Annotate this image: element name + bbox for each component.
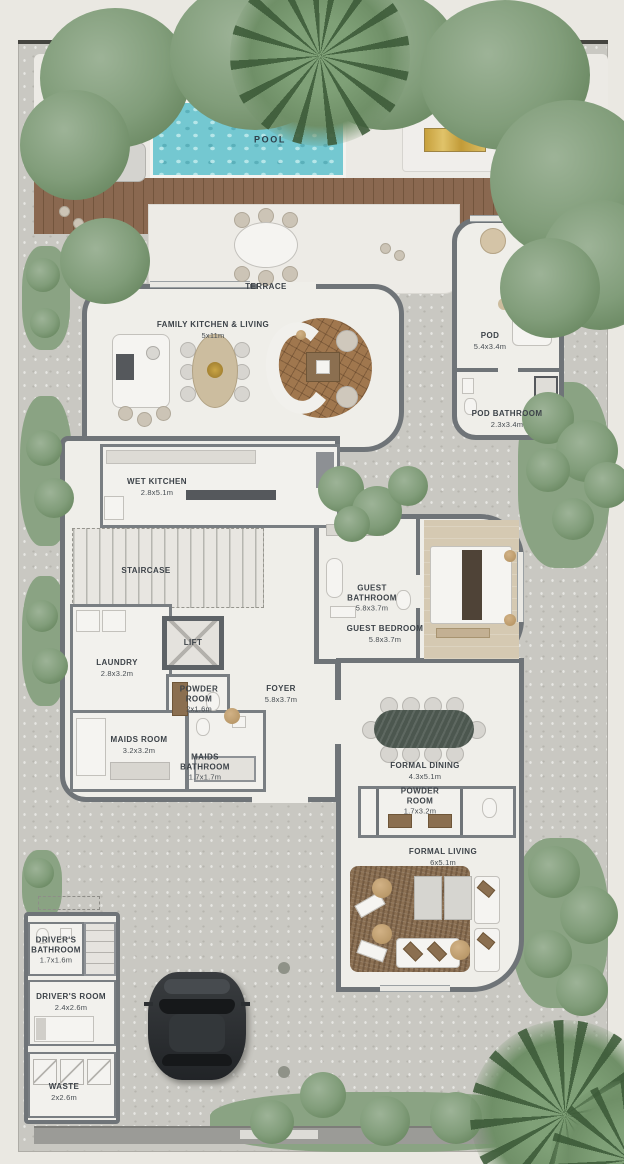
table-centerpiece bbox=[207, 362, 223, 378]
lounge-pouf bbox=[336, 386, 358, 408]
terrace-stool bbox=[282, 266, 298, 282]
dining-chair bbox=[234, 386, 250, 402]
formal-dining-table bbox=[374, 710, 474, 748]
powder2-partition bbox=[460, 789, 463, 835]
room-label-waste: WASTE2x2.6m bbox=[34, 1082, 94, 1102]
room-label-lift: LIFT bbox=[168, 638, 218, 648]
bedside-lamp bbox=[504, 614, 516, 626]
room-label-powder-room-2: POWDER ROOM1.7x3.2m bbox=[394, 786, 446, 815]
car-mirror bbox=[144, 1002, 153, 1006]
car-rear-window bbox=[162, 1054, 232, 1066]
room-label-foyer: FOYER5.8x3.7m bbox=[236, 684, 326, 704]
room-label-guest-bathroom: GUEST BATHROOM5.8x3.7m bbox=[343, 583, 401, 612]
bush bbox=[30, 308, 60, 338]
bush bbox=[32, 648, 68, 684]
stepping-stone bbox=[278, 1066, 290, 1078]
annex-porch bbox=[38, 896, 100, 910]
powder2-partition bbox=[376, 789, 379, 835]
car-mirror bbox=[241, 1002, 250, 1006]
terrace-stool bbox=[234, 266, 250, 282]
bush bbox=[300, 1072, 346, 1118]
living-pouf bbox=[372, 924, 392, 944]
living-pouf bbox=[372, 878, 392, 898]
bush bbox=[26, 430, 62, 466]
room-label-formal-dining: FORMAL DINING4.3x5.1m bbox=[370, 761, 480, 781]
guest-bathtub bbox=[326, 558, 343, 598]
terrace-pot-2 bbox=[394, 250, 405, 261]
terrace-table bbox=[234, 222, 298, 268]
room-label-maids-room: MAIDS ROOM3.2x3.2m bbox=[94, 735, 184, 755]
bush bbox=[26, 600, 58, 632]
dining-chair bbox=[180, 386, 196, 402]
tree bbox=[60, 218, 150, 304]
room-label-pod-bathroom: POD BATHROOM2.3x3.4m bbox=[447, 409, 567, 429]
foyer-dining-opening bbox=[334, 700, 341, 744]
deck-pot-1 bbox=[59, 206, 70, 217]
maids-toilet bbox=[196, 718, 210, 736]
waste-bin bbox=[87, 1059, 111, 1085]
floor-plan: POOL TERRACE FAMILY KITCHEN & LIVING5x11… bbox=[0, 0, 624, 1164]
room-label-pod: POD5.4x3.4m bbox=[450, 331, 530, 351]
bush bbox=[250, 1100, 294, 1144]
bush bbox=[34, 478, 74, 518]
window-guest-right bbox=[517, 552, 524, 622]
waste-bin bbox=[33, 1059, 57, 1085]
coffee-table-tray bbox=[316, 360, 330, 374]
bush bbox=[360, 1096, 410, 1146]
lounge-pouf bbox=[336, 330, 358, 352]
car bbox=[148, 972, 246, 1080]
room-label-wet-kitchen: WET KITCHEN2.8x5.1m bbox=[102, 477, 212, 497]
bush bbox=[26, 258, 60, 292]
bush bbox=[24, 858, 54, 888]
car-windshield bbox=[159, 999, 235, 1014]
room-label-powder-room: POWDER ROOM2x1.6m bbox=[174, 684, 224, 713]
living-pouf bbox=[450, 940, 470, 960]
washer bbox=[76, 610, 100, 632]
room-label-terrace: TERRACE bbox=[221, 282, 311, 292]
room-label-maids-bathroom: MAIDS BATHROOM1.7x1.7m bbox=[173, 752, 237, 781]
bush bbox=[552, 498, 594, 540]
room-label-family-kitchen-living: FAMILY KITCHEN & LIVING5x11m bbox=[123, 320, 303, 340]
powder2-vanity bbox=[428, 814, 452, 828]
car-hood bbox=[164, 979, 230, 994]
bush bbox=[526, 448, 570, 492]
bush bbox=[556, 964, 608, 1016]
window-living-bottom bbox=[380, 985, 450, 992]
maids-closet bbox=[110, 762, 170, 780]
bush bbox=[584, 462, 624, 508]
waste-bin bbox=[60, 1059, 84, 1085]
bush bbox=[334, 506, 370, 542]
room-label-laundry: LAUNDRY2.8x3.2m bbox=[72, 658, 162, 678]
room-label-formal-living: FORMAL LIVING6x5.1m bbox=[388, 847, 498, 867]
car-roof bbox=[169, 1014, 225, 1052]
bush bbox=[560, 886, 618, 944]
kitchen-stool bbox=[156, 406, 171, 421]
room-label-pool: POOL bbox=[254, 135, 286, 146]
tree bbox=[20, 90, 130, 200]
pod-bath-sink bbox=[462, 378, 474, 394]
drivers-bath-shelves bbox=[84, 922, 116, 976]
wet-kitchen-cart bbox=[104, 496, 124, 520]
room-label-drivers-room: DRIVER'S ROOM2.4x2.6m bbox=[24, 992, 118, 1012]
powder2-toilet bbox=[482, 798, 497, 818]
main-entrance-opening bbox=[252, 794, 308, 803]
drivers-bed-pillow bbox=[36, 1018, 46, 1040]
kitchen-stove bbox=[116, 354, 134, 380]
tree bbox=[500, 238, 600, 338]
room-label-staircase: STAIRCASE bbox=[101, 566, 191, 576]
kitchen-stool bbox=[118, 406, 133, 421]
pod-chair bbox=[480, 228, 506, 254]
living-coffee-table bbox=[414, 876, 442, 920]
room-label-guest-bedroom: GUEST BEDROOM5.8x3.7m bbox=[325, 624, 445, 644]
pod-partition bbox=[454, 368, 498, 372]
guest-partition bbox=[416, 519, 420, 575]
guest-bed-runner bbox=[462, 550, 482, 620]
powder2-vanity bbox=[388, 814, 412, 828]
foyer-stool bbox=[224, 708, 240, 724]
bush bbox=[388, 466, 428, 506]
kitchen-sink bbox=[146, 346, 160, 360]
living-coffee-table bbox=[444, 876, 472, 920]
kitchen-stool bbox=[137, 412, 152, 427]
stepping-stone bbox=[278, 962, 290, 974]
dining-chair bbox=[234, 342, 250, 358]
wet-kitchen-counter bbox=[106, 450, 256, 464]
pod-partition bbox=[518, 368, 562, 372]
room-label-drivers-bathroom: DRIVER'S BATHROOM1.7x1.6m bbox=[26, 935, 86, 964]
terrace-pot-1 bbox=[380, 243, 391, 254]
dryer bbox=[102, 610, 126, 632]
bedside-lamp bbox=[504, 550, 516, 562]
